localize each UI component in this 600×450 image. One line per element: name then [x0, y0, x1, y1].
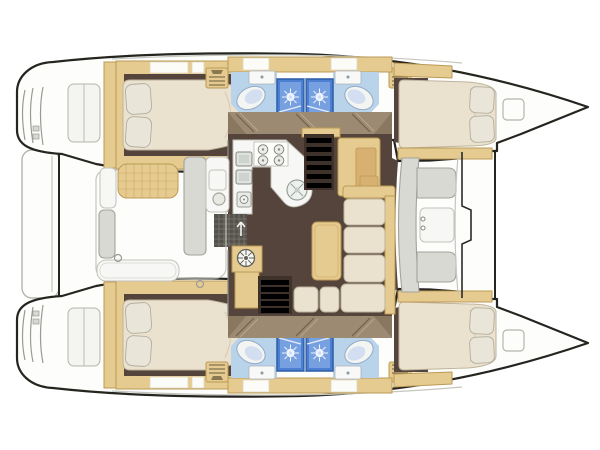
sink-basin	[239, 155, 249, 163]
pillow	[469, 86, 494, 113]
settee-cushion	[344, 199, 385, 225]
bow-deck-hatch	[503, 99, 524, 120]
shower-stall	[306, 79, 333, 115]
faucet-dot	[261, 76, 264, 79]
salon	[214, 128, 398, 316]
locker-base	[235, 272, 259, 308]
settee-cushion	[294, 287, 318, 312]
side-bench	[99, 210, 115, 258]
settee-corner-cushion	[341, 284, 385, 312]
settee-cushion	[344, 227, 385, 253]
module-sink	[213, 193, 225, 205]
locker-inset	[192, 62, 204, 73]
dinghy-davit-platform	[22, 150, 59, 298]
shower-stall	[277, 79, 304, 115]
settee-cushion	[320, 287, 339, 312]
hinge-dot	[421, 217, 425, 221]
pillow	[469, 115, 494, 142]
settee-backrest	[385, 196, 395, 314]
wardrobe	[104, 62, 116, 168]
pillow	[125, 116, 152, 148]
galley-appliance	[237, 192, 251, 207]
cockpit-seat	[100, 168, 116, 208]
helm-wheel-icon	[238, 250, 255, 267]
catamaran-floor-plan	[0, 0, 600, 450]
sink-basin	[239, 173, 249, 181]
forward-table	[420, 208, 454, 242]
c-bench-back	[399, 158, 420, 292]
helm-locker	[232, 246, 262, 308]
cockpit-table	[118, 164, 178, 198]
c-bench-arm	[417, 252, 456, 282]
hinge-dot	[421, 226, 425, 230]
cabin-trim	[394, 63, 452, 78]
pillow	[125, 83, 152, 115]
bench-backrest	[184, 157, 206, 255]
shower-head-icon	[311, 89, 328, 106]
locker-inset	[150, 62, 188, 73]
cabinet-inset	[243, 58, 269, 70]
shower-head-icon	[282, 89, 299, 106]
cabinet-inset	[331, 58, 357, 70]
berth-base-trim	[398, 148, 492, 159]
aft-bench	[97, 260, 179, 281]
louver-hatch-icon	[206, 68, 228, 88]
settee-cushion	[344, 255, 385, 282]
c-bench-arm	[417, 168, 456, 198]
stove	[254, 142, 288, 166]
dinette-table	[312, 222, 341, 280]
aft-platform	[22, 150, 59, 298]
companionway-stairs-starboard	[258, 276, 292, 314]
faucet-dot	[347, 76, 350, 79]
